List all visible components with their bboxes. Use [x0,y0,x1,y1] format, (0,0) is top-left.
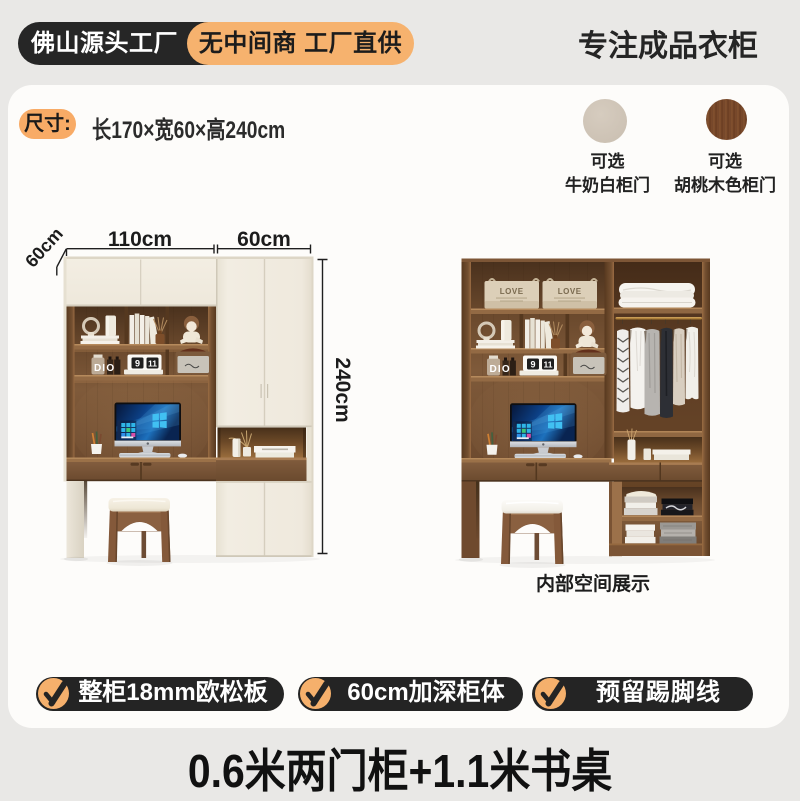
svg-text:60cm: 60cm [237,228,291,251]
svg-text:LOVE: LOVE [558,287,582,296]
svg-text:11: 11 [148,359,157,369]
svg-text:110cm: 110cm [108,228,172,251]
svg-text:240cm: 240cm [331,357,354,422]
svg-text:LOVE: LOVE [500,287,524,296]
svg-text:DIO: DIO [94,363,115,374]
svg-text:9: 9 [135,359,140,369]
svg-text:60cm: 60cm [21,224,67,272]
